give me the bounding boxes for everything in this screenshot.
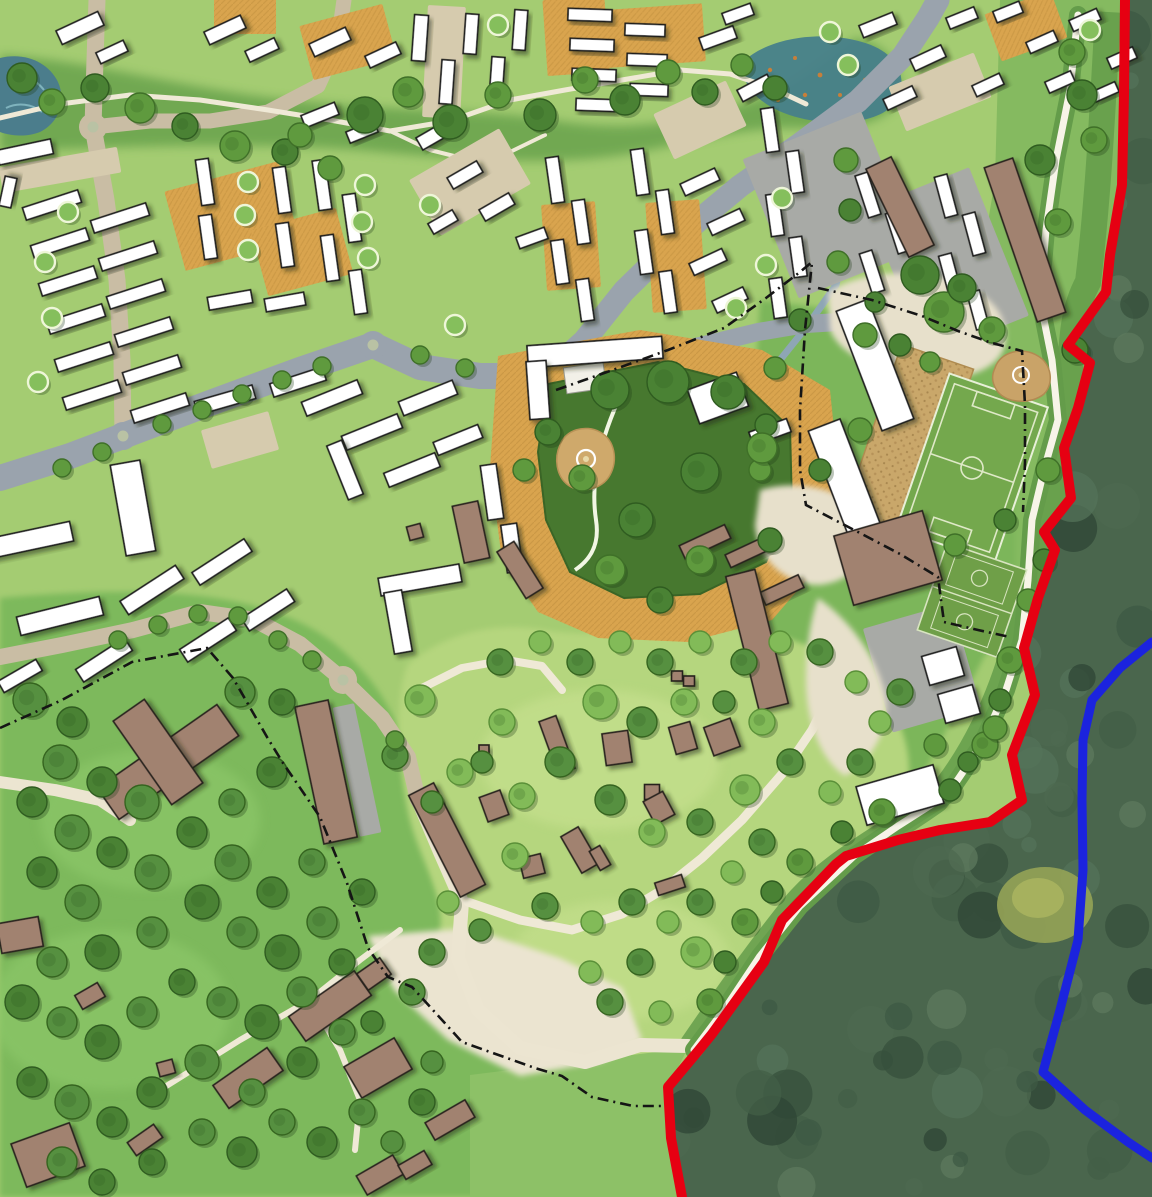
woodland-canopy (1094, 483, 1140, 529)
roundabout-island (338, 675, 349, 686)
woodland-canopy (1044, 782, 1074, 812)
woodland-light-clump (1012, 878, 1064, 918)
woodland-canopy (932, 1067, 983, 1118)
woodland-canopy (1087, 1128, 1133, 1174)
masterplan-canvas (0, 0, 1152, 1197)
woodland-canopy (953, 1152, 969, 1168)
court-hatch (645, 199, 707, 312)
woodland-canopy (885, 1003, 913, 1031)
woodland-canopy (1105, 904, 1149, 948)
campus-play-mound (993, 351, 1051, 401)
woodland-canopy (736, 1070, 781, 1115)
building-proposed (439, 60, 455, 105)
woodland-canopy (924, 1128, 947, 1151)
building-proposed (568, 8, 612, 22)
building-proposed (463, 14, 479, 55)
building-proposed (526, 360, 550, 419)
woodland-canopy (1119, 801, 1146, 828)
woodland-canopy (838, 1089, 857, 1108)
woodland-canopy (1068, 664, 1095, 691)
building-proposed (411, 15, 428, 62)
building-existing (156, 1059, 175, 1077)
woodland-canopy (927, 989, 967, 1029)
building-existing (684, 676, 695, 686)
court-hatch (541, 201, 601, 291)
building-existing (602, 730, 632, 765)
woodland-canopy (927, 1041, 961, 1075)
woodland-canopy (958, 892, 1005, 939)
woodland-canopy (795, 1119, 821, 1145)
woodland-canopy (1099, 711, 1137, 749)
roundabout-island (118, 431, 129, 442)
building-proposed (625, 23, 665, 36)
woodland-canopy (1114, 333, 1144, 363)
woodland-canopy (1005, 1131, 1050, 1176)
building-existing (406, 523, 423, 540)
woodland-canopy (881, 1036, 924, 1079)
woodland-canopy (1016, 1071, 1038, 1093)
masterplan-map (0, 0, 1152, 1197)
building-proposed (570, 38, 614, 52)
roundabout-island (88, 122, 99, 133)
woodland-canopy (837, 880, 880, 923)
roundabout-island (368, 340, 379, 351)
woodland-canopy (762, 1000, 778, 1016)
woodland-canopy (1092, 992, 1113, 1013)
woodland-canopy (1050, 731, 1066, 747)
woodland-canopy (1120, 290, 1149, 319)
woodland-canopy (1021, 837, 1036, 852)
building-existing (0, 917, 43, 954)
woodland-canopy (905, 1178, 923, 1196)
building-proposed (512, 10, 528, 51)
woodland-canopy (913, 846, 965, 898)
